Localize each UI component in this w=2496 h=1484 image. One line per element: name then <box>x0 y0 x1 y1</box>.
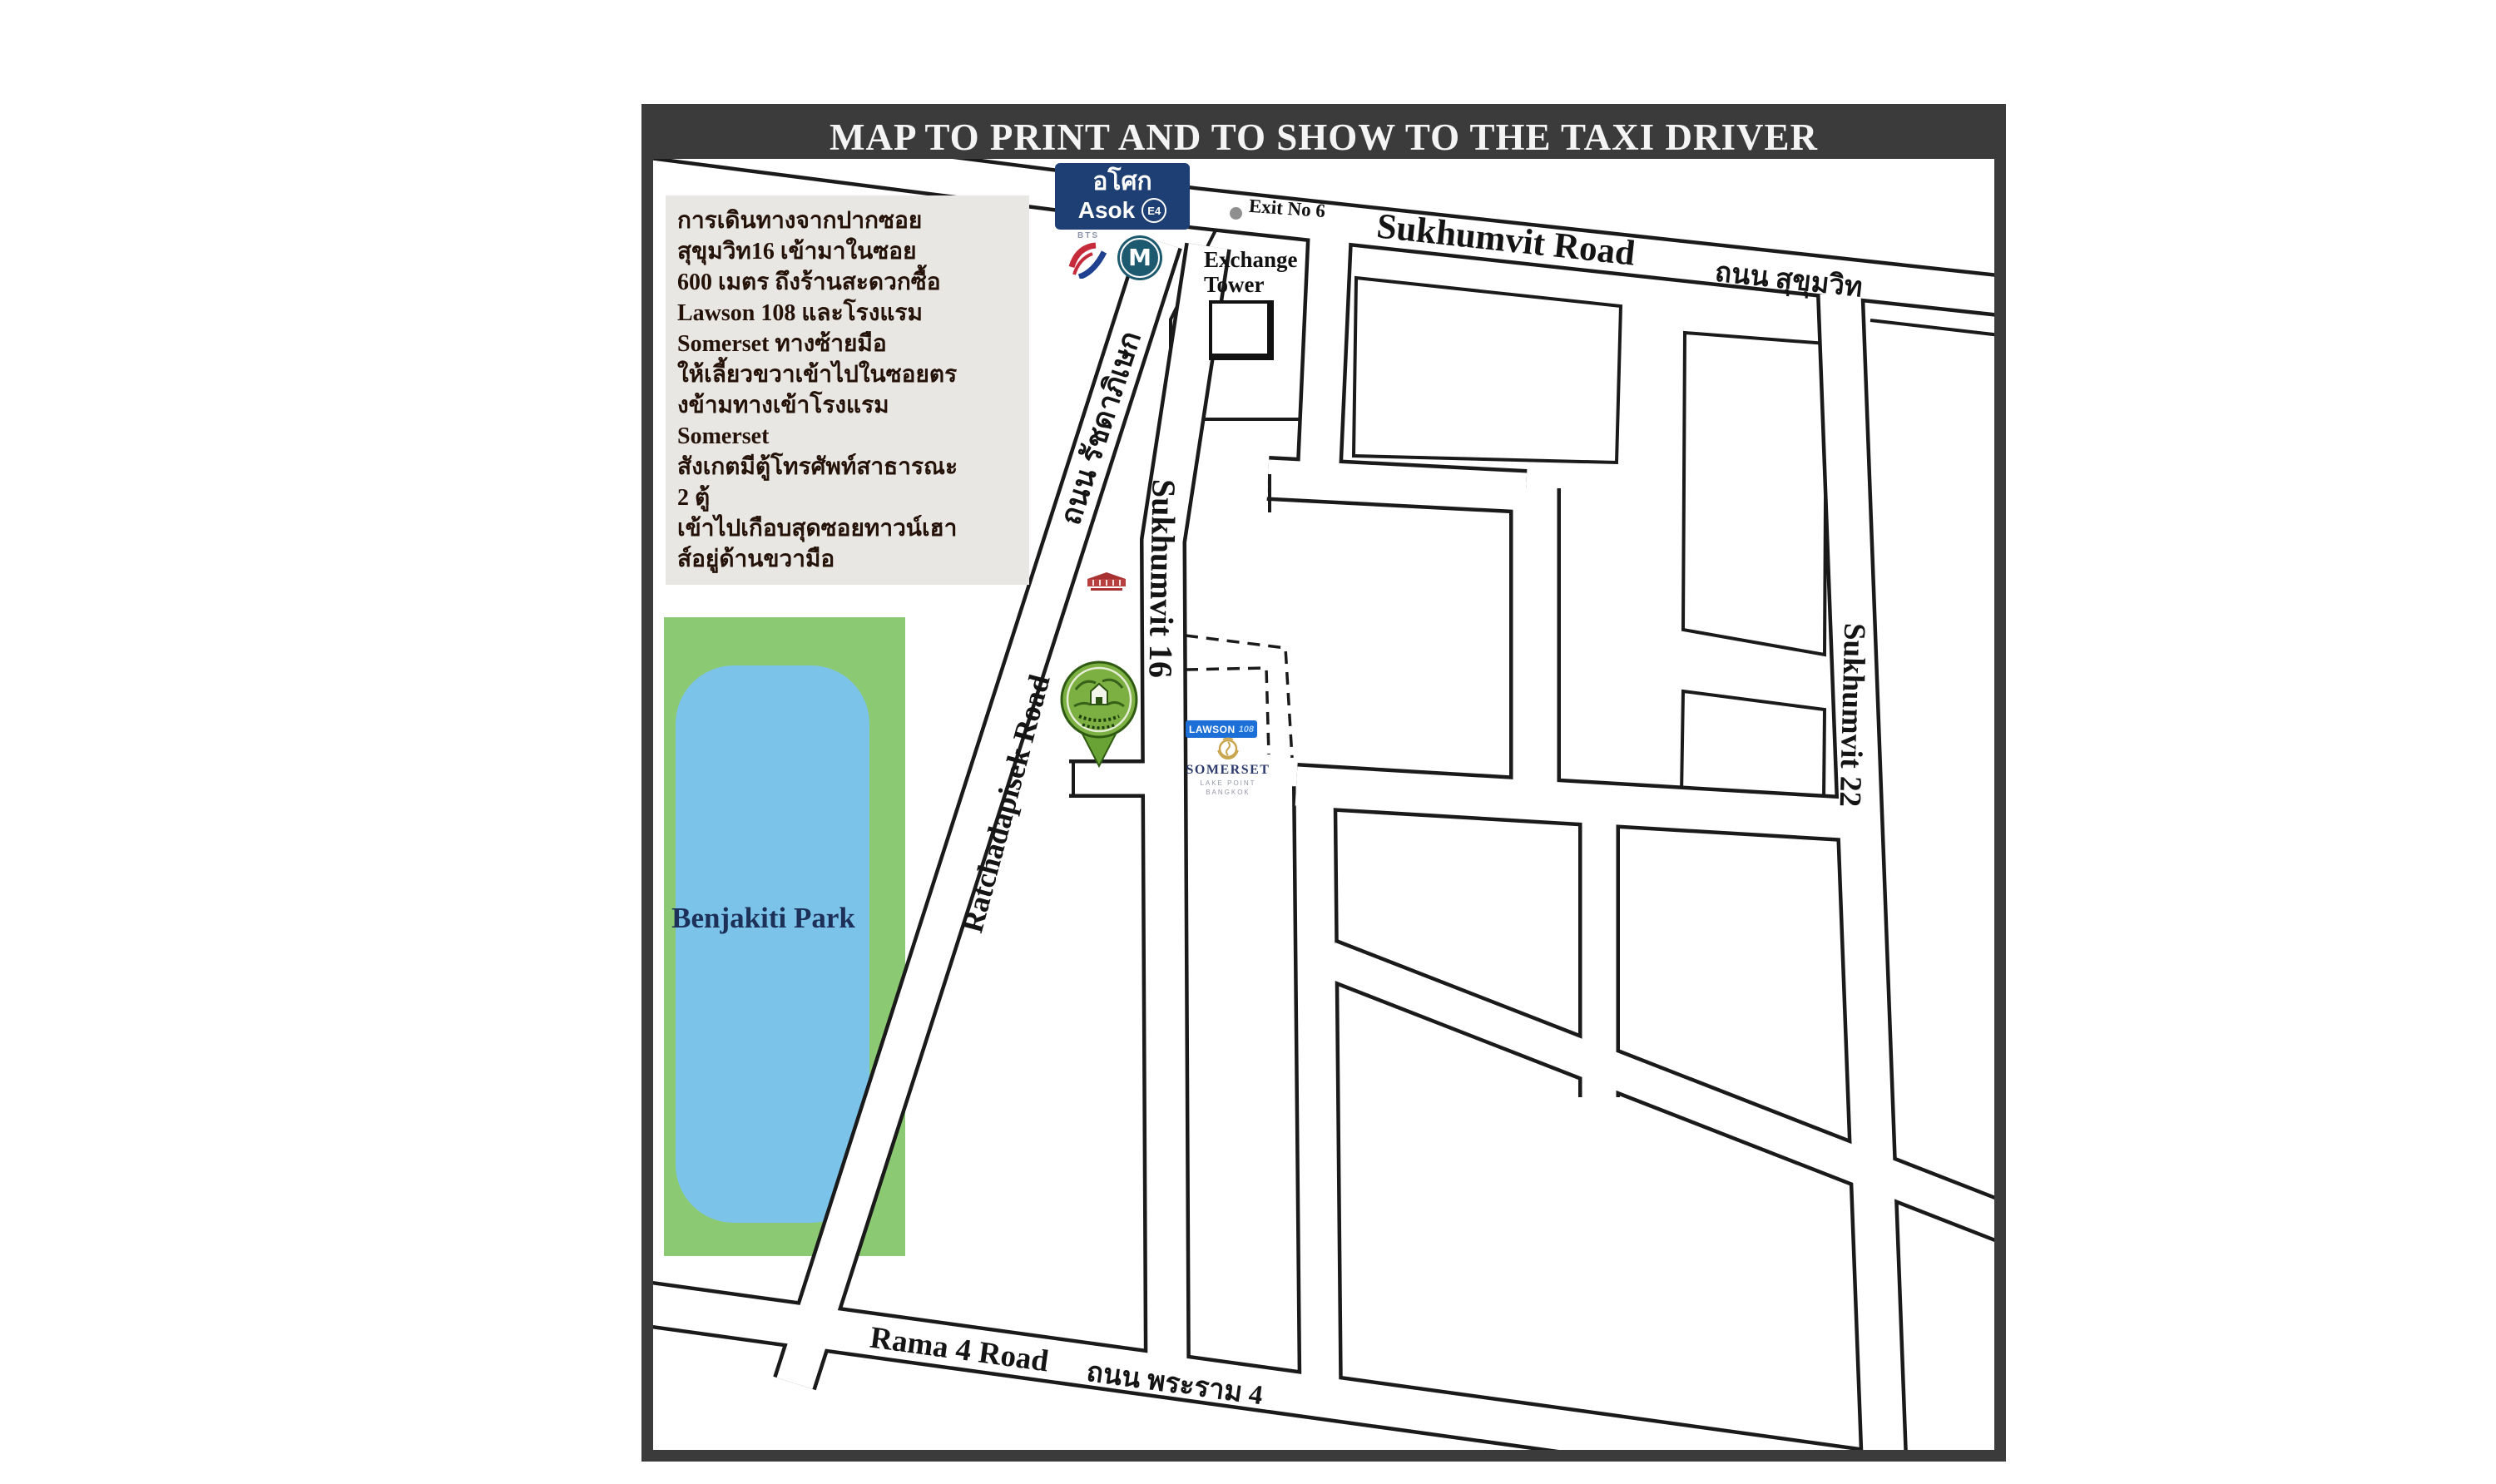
map-page: MAP TO PRINT AND TO SHOW TO THE TAXI DRI… <box>0 0 2496 1484</box>
side-road-1-surface <box>1319 239 1330 482</box>
instruction-line: Somerset ทางซ้ายมือ <box>677 329 1021 359</box>
instruction-line: Somerset <box>677 421 1021 452</box>
sukhumvit-16-label: Sukhumvit 16 <box>1141 445 1185 712</box>
instruction-line: 600 เมตร ถึงร้านสะดวกซื้อ <box>677 267 1021 298</box>
somerset-sub1: LAKE POINT <box>1177 779 1279 787</box>
instruction-line: ให้เลี้ยวขวาเข้าไปในซอยตร <box>677 359 1021 390</box>
instruction-line: Lawson 108 และโรงแรม <box>677 298 1021 329</box>
exchange-tower-label: Exchange Tower <box>1204 247 1298 297</box>
instruction-line: ส์อยู่ด้านขวามือ <box>677 544 1021 575</box>
mrt-logo-icon: M <box>1117 235 1162 280</box>
sukhumvit22-surface <box>1840 294 1884 1450</box>
exit-dot-icon <box>1230 207 1242 220</box>
block-east-upper <box>1683 333 1826 655</box>
instruction-line: สังเกตมีตู้โทรศัพท์สาธารณะ <box>677 452 1021 482</box>
instruction-line: การเดินทางจากปากซอย <box>677 205 1021 236</box>
bts-logo-icon: BTS <box>1064 232 1112 284</box>
exchange-tower-line1: Exchange <box>1204 247 1298 272</box>
instruction-line: 2 ตู้ <box>677 482 1021 513</box>
instruction-line: เข้าไปเกือบสุดซอยทาวน์เฮา <box>677 513 1021 544</box>
instructions-box: การเดินทางจากปากซอย สุขุมวิท16 เข้ามาในซ… <box>666 195 1029 585</box>
asok-station-badge: อโศก Asok E4 <box>1055 163 1190 230</box>
cross-road-a-surface <box>1268 478 1526 492</box>
lawson-108-sign: LAWSON 108 <box>1186 720 1257 738</box>
mrt-logo-letter: M <box>1128 246 1151 270</box>
somerset-sub2: BANGKOK <box>1177 789 1279 796</box>
lawson-name: LAWSON <box>1189 724 1236 735</box>
bts-logo-text: BTS <box>1064 232 1112 240</box>
asok-station-code: E4 <box>1142 198 1166 223</box>
red-building-logo-icon <box>1084 571 1129 593</box>
bts-logo-graphic <box>1067 240 1109 279</box>
block-far-east-edge <box>1870 320 1994 338</box>
exchange-tower-line2: Tower <box>1204 272 1298 297</box>
map-title-text: MAP TO PRINT AND TO SHOW TO THE TAXI DRI… <box>830 116 1818 159</box>
lawson-number: 108 <box>1239 725 1254 735</box>
somerset-logo: SOMERSET LAKE POINT BANGKOK <box>1177 737 1279 796</box>
exchange-tower-building <box>1209 300 1274 360</box>
map-title: MAP TO PRINT AND TO SHOW TO THE TAXI DRI… <box>653 116 1994 159</box>
map-frame: MAP TO PRINT AND TO SHOW TO THE TAXI DRI… <box>641 104 2006 1462</box>
somerset-crest-icon <box>1213 737 1243 762</box>
location-pin-icon <box>1059 658 1139 769</box>
block-east-lower <box>1681 691 1825 801</box>
block-north-middle <box>1354 278 1621 463</box>
instruction-line: สุขุมวิท16 เข้ามาในซอย <box>677 236 1021 267</box>
benjakiti-park-label: Benjakiti Park <box>661 902 865 935</box>
asok-station-name-en: Asok <box>1078 197 1135 224</box>
vertical-road-3-surface <box>1315 786 1320 1401</box>
sukhumvit-22-label: Sukhumvit 22 <box>1831 590 1874 840</box>
somerset-name: SOMERSET <box>1177 763 1279 778</box>
asok-station-name-thai: อโศก <box>1092 169 1151 195</box>
instruction-line: งข้ามทางเข้าโรงแรม <box>677 390 1021 421</box>
diagonal-road-surface <box>1329 959 1994 1229</box>
